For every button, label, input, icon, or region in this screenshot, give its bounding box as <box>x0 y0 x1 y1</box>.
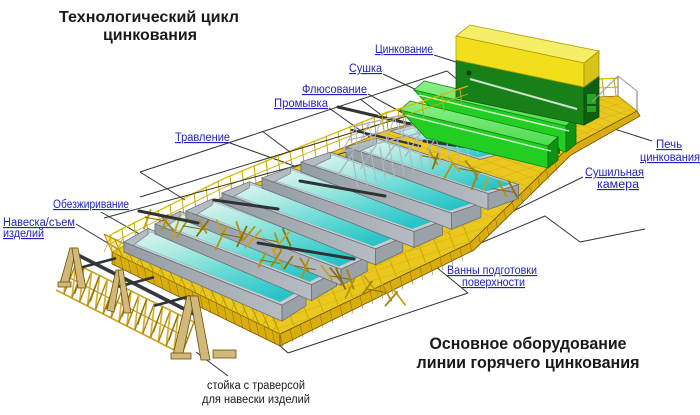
svg-text:изделий: изделий <box>3 228 44 240</box>
svg-text:Печь: Печь <box>656 139 682 151</box>
svg-text:камера: камера <box>597 179 640 191</box>
svg-text:Сушильная: Сушильная <box>585 167 644 179</box>
svg-text:Сушка: Сушка <box>349 63 383 75</box>
svg-text:Обезжиривание: Обезжиривание <box>53 199 129 211</box>
svg-text:Флюсование: Флюсование <box>302 84 367 96</box>
svg-text:для навески изделий: для навески изделий <box>202 394 310 406</box>
svg-text:Основное оборудование: Основное оборудование <box>430 334 627 353</box>
svg-text:Ванны подготовки: Ванны подготовки <box>447 265 537 277</box>
svg-text:стойка с траверсой: стойка с траверсой <box>207 380 305 392</box>
svg-text:Промывка: Промывка <box>274 98 329 110</box>
svg-text:линии горячего цинкования: линии горячего цинкования <box>417 353 640 372</box>
svg-text:поверхности: поверхности <box>462 277 525 289</box>
svg-text:цинкования: цинкования <box>640 152 700 164</box>
svg-text:Технологический цикл: Технологический цикл <box>59 9 239 26</box>
svg-text:Цинкование: Цинкование <box>375 44 433 56</box>
svg-text:цинкования: цинкования <box>103 27 197 44</box>
svg-text:Травление: Травление <box>175 132 230 144</box>
